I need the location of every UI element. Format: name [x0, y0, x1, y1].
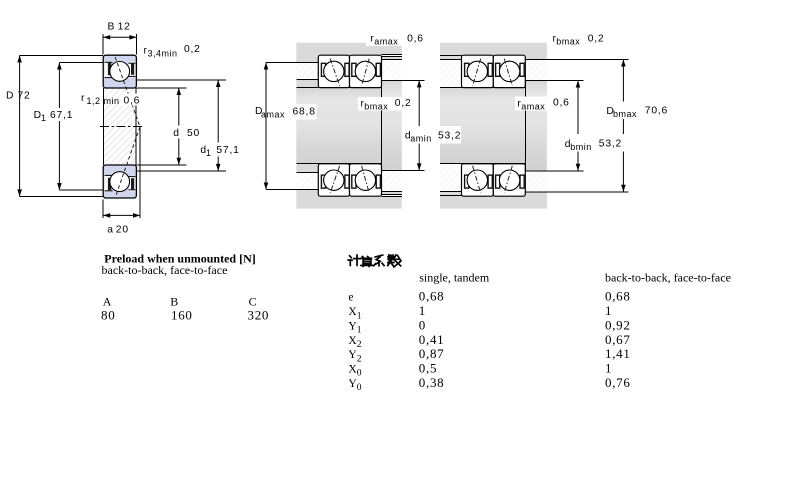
svg-text:0,6: 0,6: [553, 98, 570, 109]
svg-text:0,6: 0,6: [124, 96, 141, 107]
svg-text:67,1: 67,1: [50, 110, 73, 121]
svg-text:72: 72: [18, 91, 31, 102]
svg-text:53,2: 53,2: [599, 139, 622, 150]
svg-text:1,41: 1,41: [605, 346, 631, 361]
svg-text:bmax: bmax: [556, 37, 580, 47]
svg-text:12: 12: [118, 21, 131, 32]
svg-text:B: B: [108, 21, 116, 32]
svg-text:0: 0: [419, 317, 426, 332]
svg-text:0,92: 0,92: [605, 317, 631, 332]
svg-text:0: 0: [357, 383, 362, 393]
svg-text:1: 1: [357, 326, 362, 336]
svg-text:A: A: [103, 294, 112, 308]
svg-text:amax: amax: [261, 110, 285, 120]
svg-text:d: d: [173, 128, 180, 139]
svg-text:0,87: 0,87: [419, 346, 445, 361]
svg-text:68,8: 68,8: [293, 107, 316, 118]
svg-text:80: 80: [101, 307, 115, 322]
svg-text:amax: amax: [521, 102, 545, 112]
svg-text:r: r: [81, 93, 85, 104]
svg-text:back-to-back, face-to-face: back-to-back, face-to-face: [605, 271, 731, 285]
svg-text:1: 1: [605, 361, 612, 376]
svg-text:70,6: 70,6: [645, 106, 668, 117]
svg-text:D: D: [6, 91, 14, 102]
svg-text:0,68: 0,68: [605, 289, 631, 304]
svg-text:0,41: 0,41: [419, 332, 445, 347]
svg-text:0,68: 0,68: [419, 289, 445, 304]
svg-text:3,4min: 3,4min: [148, 49, 178, 59]
svg-text:single, tandem: single, tandem: [419, 271, 490, 285]
svg-text:back-to-back, face-to-face: back-to-back, face-to-face: [102, 263, 228, 277]
svg-text:1: 1: [357, 311, 362, 321]
svg-text:1,2 min: 1,2 min: [87, 96, 120, 106]
svg-text:bmax: bmax: [364, 102, 388, 112]
svg-text:e: e: [348, 292, 353, 304]
svg-text:1: 1: [605, 303, 612, 318]
svg-text:B: B: [170, 294, 178, 308]
svg-text:0: 0: [357, 369, 362, 379]
svg-text:2: 2: [357, 340, 362, 350]
svg-text:57,1: 57,1: [216, 145, 239, 156]
svg-text:0,2: 0,2: [184, 44, 201, 55]
svg-text:1: 1: [41, 113, 47, 123]
svg-text:0,76: 0,76: [605, 375, 631, 390]
svg-text:0,2: 0,2: [588, 34, 605, 45]
svg-text:0,2: 0,2: [395, 98, 412, 109]
svg-text:amin: amin: [410, 134, 432, 144]
svg-text:20: 20: [116, 225, 129, 236]
svg-text:a: a: [107, 225, 114, 236]
svg-text:0,5: 0,5: [419, 361, 437, 376]
svg-text:amax: amax: [374, 37, 398, 47]
svg-text:50: 50: [187, 128, 200, 139]
svg-text:C: C: [249, 294, 257, 308]
svg-text:0,6: 0,6: [407, 34, 424, 45]
svg-text:2: 2: [357, 354, 362, 364]
svg-text:1: 1: [419, 303, 426, 318]
svg-text:0,67: 0,67: [605, 332, 631, 347]
svg-text:0,38: 0,38: [419, 375, 445, 390]
svg-text:bmin: bmin: [570, 142, 592, 152]
svg-text:1: 1: [206, 148, 212, 158]
svg-text:bmax: bmax: [613, 109, 637, 119]
svg-text:320: 320: [248, 307, 270, 322]
svg-text:160: 160: [171, 307, 193, 322]
svg-text:53,2: 53,2: [438, 131, 461, 142]
